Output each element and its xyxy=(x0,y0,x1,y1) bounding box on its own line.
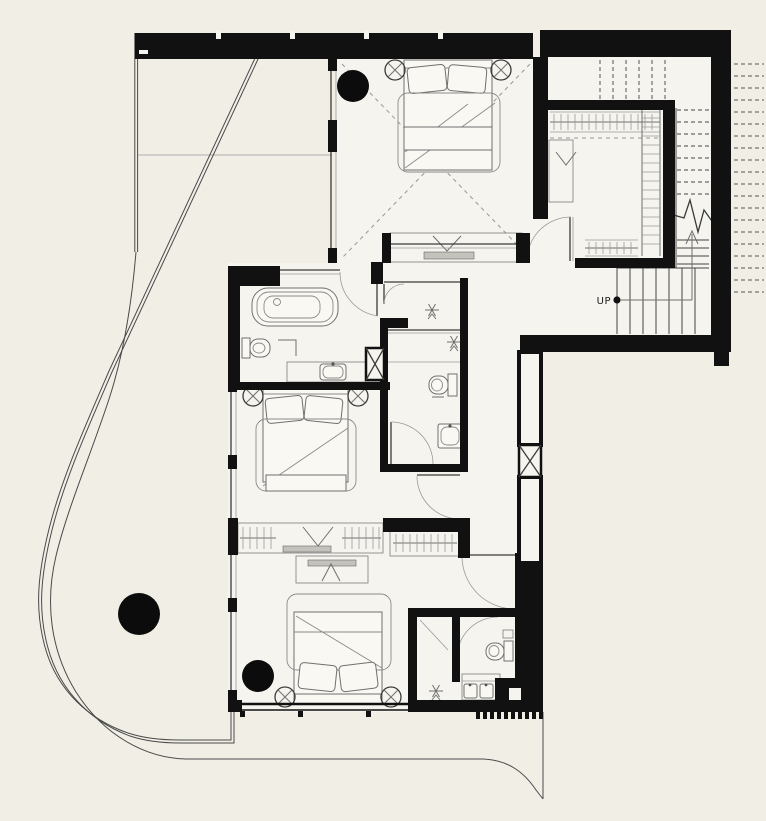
column-dot xyxy=(242,660,274,692)
stair-start-dot xyxy=(613,296,620,303)
column-dot xyxy=(337,70,369,102)
floor-plan-drawing: UP xyxy=(0,0,766,821)
duct-shaft-icon xyxy=(519,445,541,477)
bed-2 xyxy=(256,386,356,491)
corridor-wall-panel xyxy=(519,477,541,563)
east-dashed-rows xyxy=(734,64,764,292)
bathtub xyxy=(252,288,338,326)
bottom-hatch-strip xyxy=(476,711,543,719)
toilet xyxy=(429,374,457,397)
corridor-wall-panel xyxy=(519,352,541,445)
basin-sink xyxy=(438,424,462,448)
bed-master xyxy=(398,60,500,172)
floor-plan-canvas: UP xyxy=(0,0,766,821)
up-label: UP xyxy=(597,296,611,307)
column-dot xyxy=(118,593,160,635)
duct-shaft-icon xyxy=(366,348,384,380)
